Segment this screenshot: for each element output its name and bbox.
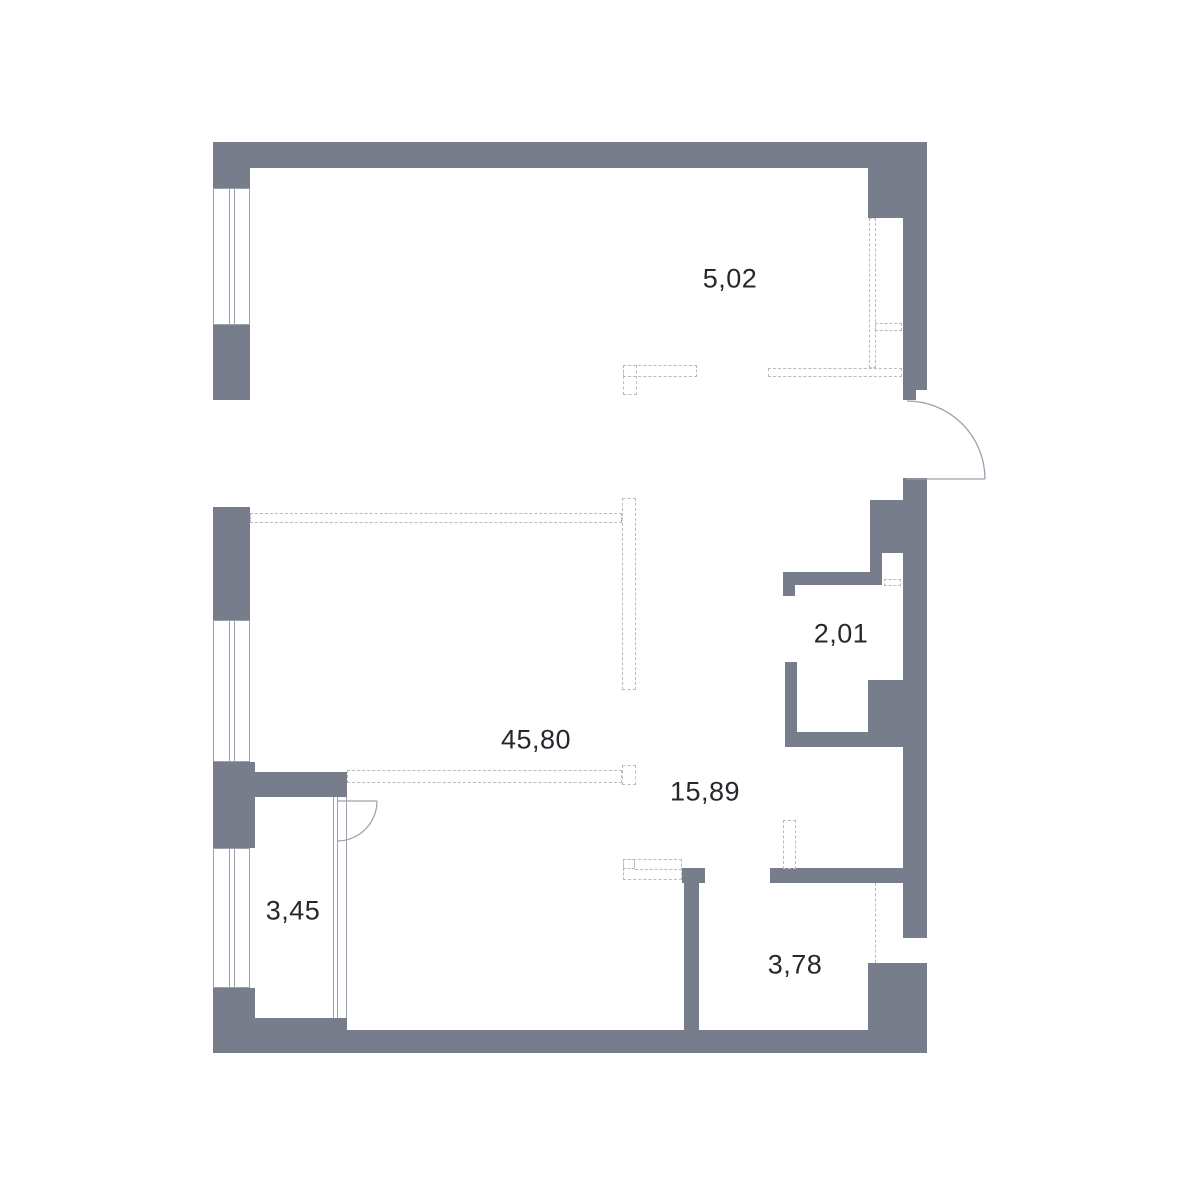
wall-bathroom-top — [770, 868, 903, 883]
dashed-outline-appliance-box — [623, 859, 635, 869]
balcony-partition-line — [337, 797, 338, 1018]
window-top — [213, 188, 250, 325]
wall-closet-bottom-tab — [785, 662, 797, 747]
dashed-outline-column — [869, 218, 876, 368]
room-area-label: 3,78 — [768, 950, 823, 981]
wall-closet-bottom — [785, 732, 868, 747]
window-glass-line — [229, 189, 230, 324]
balcony-partition-line — [346, 797, 347, 1018]
dashed-outline-door-leaf — [783, 820, 796, 869]
window-glass-line — [229, 849, 230, 987]
wall-right-middle — [903, 478, 927, 938]
wall-right-upper — [903, 142, 927, 390]
balcony-door — [337, 801, 377, 841]
wall-closet-right-block — [868, 680, 903, 747]
dashed-line-shaft — [875, 883, 876, 963]
wall-balcony-sill — [255, 1018, 347, 1031]
dashed-outline-kitchen-foot — [623, 365, 637, 395]
dashed-line-appliance-step — [635, 869, 682, 870]
wall-left-d — [213, 762, 255, 848]
floor-plan: 5,02 2,01 45,80 15,89 3,45 3,78 — [0, 0, 1200, 1200]
wall-bathroom-left — [684, 883, 699, 1030]
wall-closet-top-tab — [783, 572, 795, 596]
wall-left-e — [213, 988, 255, 1053]
entry-door — [906, 401, 985, 479]
wall-left-b — [213, 325, 250, 400]
dashed-outline-counter-lower — [347, 770, 622, 783]
entry-door-arc — [907, 401, 985, 479]
dashed-outline-counter-lower-end — [622, 765, 636, 785]
dashed-outline-duct — [884, 579, 901, 586]
wall-block-below-door — [870, 500, 903, 553]
balcony-partition-line — [333, 797, 334, 1018]
room-area-label: 2,01 — [814, 619, 869, 650]
dashed-outline-column-tie — [875, 323, 902, 331]
wall-top — [213, 142, 927, 168]
room-area-label: 45,80 — [501, 725, 571, 756]
room-area-label: 3,45 — [266, 896, 321, 927]
room-area-label: 15,89 — [670, 777, 740, 808]
wall-door-jamb — [903, 390, 916, 400]
window-glass-line — [229, 621, 230, 761]
wall-sliver — [870, 553, 882, 572]
room-area-label: 5,02 — [703, 264, 758, 295]
wall-bathroom-left-cap — [682, 868, 705, 883]
window-glass-line — [234, 189, 235, 324]
window-glass-line — [234, 621, 235, 761]
wall-left-c — [213, 507, 250, 620]
wall-left-a — [213, 142, 250, 188]
door-swings — [0, 0, 1200, 1200]
wall-balcony-stub — [250, 772, 347, 797]
dashed-outline-wardrobe-top — [250, 513, 622, 523]
wall-closet-top — [783, 572, 882, 585]
wall-bottom — [213, 1030, 927, 1053]
window-bottom — [213, 848, 250, 988]
window-glass-line — [234, 849, 235, 987]
balcony-door-arc — [337, 801, 377, 841]
dashed-outline-wardrobe-end — [622, 498, 636, 690]
window-middle — [213, 620, 250, 762]
dashed-outline-counter-top — [768, 368, 902, 377]
